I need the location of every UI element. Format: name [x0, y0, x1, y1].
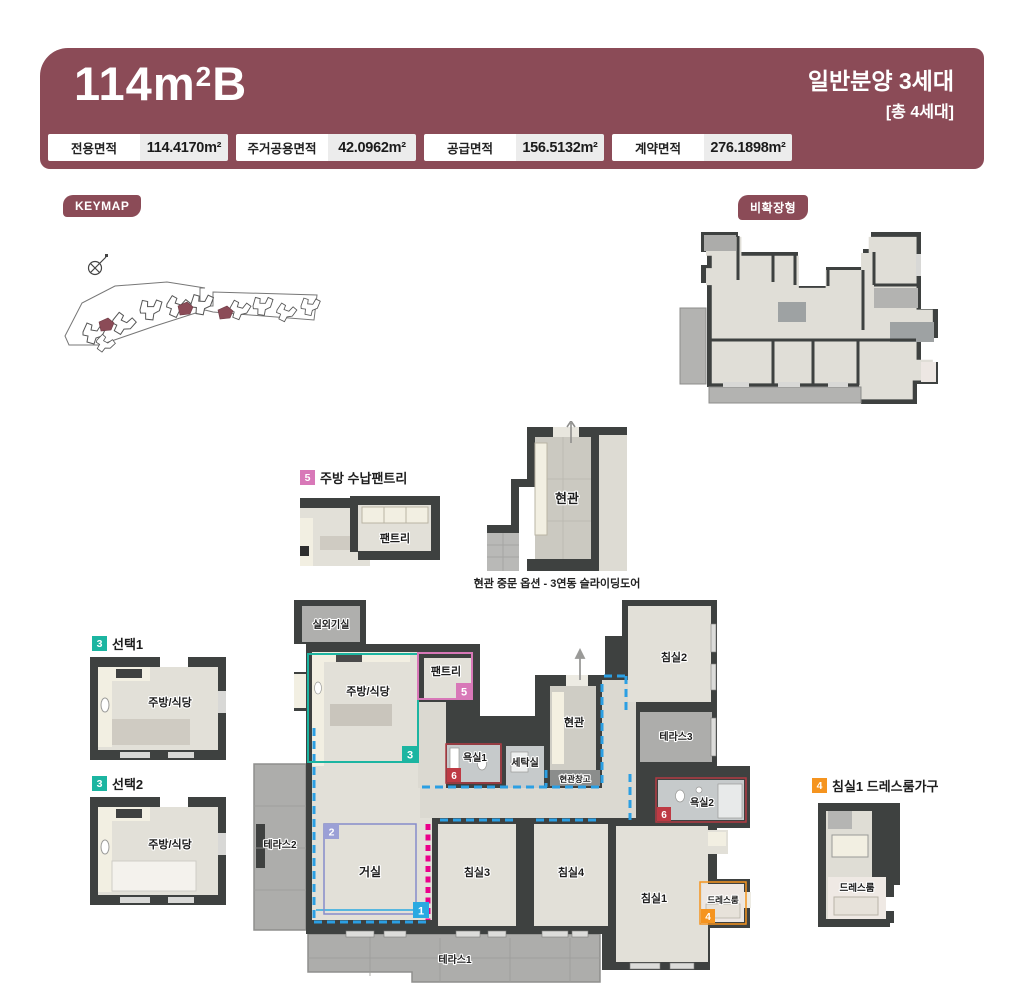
bath2-toilet: [676, 790, 685, 802]
choice1-sink: [101, 698, 109, 712]
hall-floor-1: [418, 702, 446, 788]
floorplan-page: 114m2B 일반분양 3세대 [총 4세대] 전용면적 114.4170m² …: [0, 0, 1024, 988]
label-bath1: 욕실1: [463, 751, 487, 764]
label-pantry: 팬트리: [431, 664, 461, 678]
label-dressroom: 드레스룸: [707, 895, 738, 905]
kitchen-island-corner: [320, 536, 350, 550]
page-title: 114m2B: [74, 56, 247, 111]
choice2-hood: [116, 809, 142, 818]
option6-num-bath2: 6: [661, 810, 667, 821]
entrance-shoe-cabinet: [552, 692, 564, 764]
dressroom-tile-corner: [828, 811, 852, 829]
area-box-supply: 공급면적 156.5132m²: [424, 134, 604, 161]
supply-total: [총 4세대]: [808, 98, 954, 122]
choice2-label: 3 선택2: [92, 774, 143, 793]
kitchen-hood: [336, 654, 362, 662]
area-table: 전용면적 114.4170m² 주거공용면적 42.0962m² 공급면적 15…: [48, 134, 792, 161]
label-living: 거실: [359, 864, 381, 879]
choice1-label: 3 선택1: [92, 634, 143, 653]
label-entrance: 현관: [564, 715, 584, 729]
option2-num: 2: [329, 827, 335, 839]
keymap-badge: KEYMAP: [63, 195, 141, 217]
header-band: 114m2B 일반분양 3세대 [총 4세대] 전용면적 114.4170m² …: [40, 48, 984, 169]
title-superscript: 2: [196, 61, 213, 92]
entrance-door-gap: [566, 675, 588, 686]
choice2-title: 선택2: [112, 774, 143, 793]
option5-num: 5: [461, 687, 467, 699]
dressroom-detail-plan: 드레스룸: [812, 799, 906, 931]
choice1-hood: [116, 669, 142, 678]
main-floor-plan: 3 5 6 6 2 1 4 실외기실 주방/식당 팬트리 욕실1 세탁: [250, 596, 810, 988]
entrance-option-caption: 현관 중문 옵션 - 3연동 슬라이딩도어: [447, 575, 667, 591]
entrance-detail-plan: 현관: [487, 421, 627, 571]
option3-num: 3: [407, 750, 413, 762]
choice1-detail-plan: 주방/식당: [90, 657, 226, 760]
choice2-sink: [101, 840, 109, 854]
non-expanded-mini-plan: [678, 230, 968, 412]
shoe-cabinet: [535, 443, 547, 535]
choice2-detail-plan: 주방/식당: [90, 797, 226, 905]
bath2-tub: [718, 784, 742, 818]
pantry-shelves: [362, 507, 428, 523]
kitchen-island: [330, 704, 392, 726]
label-entrance-storage: 현관창고: [559, 774, 590, 784]
label-bedroom2: 침실2: [661, 650, 687, 664]
area-label: 계약면적: [612, 134, 704, 161]
option-3-badge: 3: [92, 776, 107, 791]
label-kitchen: 주방/식당: [346, 684, 390, 698]
bay-window: [294, 674, 306, 708]
label-terrace2: 테라스2: [263, 838, 297, 851]
option1-num: 1: [418, 906, 424, 918]
title-main: 114m: [74, 57, 196, 110]
dressroom-room-label: 드레스룸: [840, 882, 875, 894]
non-expanded-badge: 비확장형: [738, 195, 808, 220]
area-box-exclusive: 전용면적 114.4170m²: [48, 134, 228, 161]
area-box-contract: 계약면적 276.1898m²: [612, 134, 792, 161]
supply-type: 일반분양 3세대: [808, 62, 954, 96]
label-laundry: 세탁실: [511, 756, 539, 769]
adjacent-floor: [599, 435, 627, 571]
dressroom-cabinet: [832, 835, 868, 857]
dressroom-option-label: 4 침실1 드레스룸가구: [812, 776, 939, 795]
area-label: 전용면적: [48, 134, 140, 161]
title-suffix: B: [212, 57, 247, 110]
label-machine-room: 실외기실: [313, 618, 350, 631]
choice1-room-label: 주방/식당: [148, 695, 192, 709]
pantry-option-label: 5 주방 수납팬트리: [300, 468, 407, 487]
pantry-option-title: 주방 수납팬트리: [320, 468, 407, 487]
kitchen-cooktop: [300, 546, 309, 556]
pantry-detail-plan: 팬트리: [300, 490, 440, 566]
entrance-door-gap: [553, 427, 579, 437]
option-4-badge: 4: [812, 778, 827, 793]
pantry-room-label: 팬트리: [380, 531, 410, 545]
option-5-badge: 5: [300, 470, 315, 485]
label-bedroom1: 침실1: [641, 891, 667, 905]
kitchen-counter: [300, 518, 313, 566]
compass-icon: [89, 254, 109, 275]
choice2-room-label: 주방/식당: [148, 837, 192, 851]
label-bedroom3: 침실3: [464, 865, 490, 879]
area-label: 공급면적: [424, 134, 516, 161]
choice2-island-marble: [112, 861, 196, 891]
option6-num-bath1: 6: [451, 771, 457, 782]
choice1-title: 선택1: [112, 634, 143, 653]
choice1-island: [112, 719, 190, 745]
area-label: 주거공용면적: [236, 134, 328, 161]
area-value: 42.0962m²: [328, 134, 416, 161]
label-bedroom4: 침실4: [558, 865, 585, 879]
supply-info: 일반분양 3세대 [총 4세대]: [808, 62, 954, 122]
area-box-common: 주거공용면적 42.0962m²: [236, 134, 416, 161]
dressroom-door-gap: [744, 892, 751, 908]
label-terrace3: 테라스3: [659, 730, 693, 743]
area-value: 276.1898m²: [704, 134, 792, 161]
label-bath2: 욕실2: [690, 796, 714, 809]
keymap-site-plan: [55, 248, 325, 353]
area-value: 114.4170m²: [140, 134, 228, 161]
dressroom-wardrobe: [834, 897, 878, 915]
dressroom-option-title: 침실1 드레스룸가구: [832, 776, 939, 795]
label-terrace1: 테라스1: [438, 953, 472, 966]
kitchen-sink: [315, 682, 322, 694]
option-3-badge: 3: [92, 636, 107, 651]
entrance-room-label: 현관: [555, 491, 579, 506]
option4-num: 4: [705, 912, 711, 923]
bath2-shower: [696, 787, 702, 793]
area-value: 156.5132m²: [516, 134, 604, 161]
